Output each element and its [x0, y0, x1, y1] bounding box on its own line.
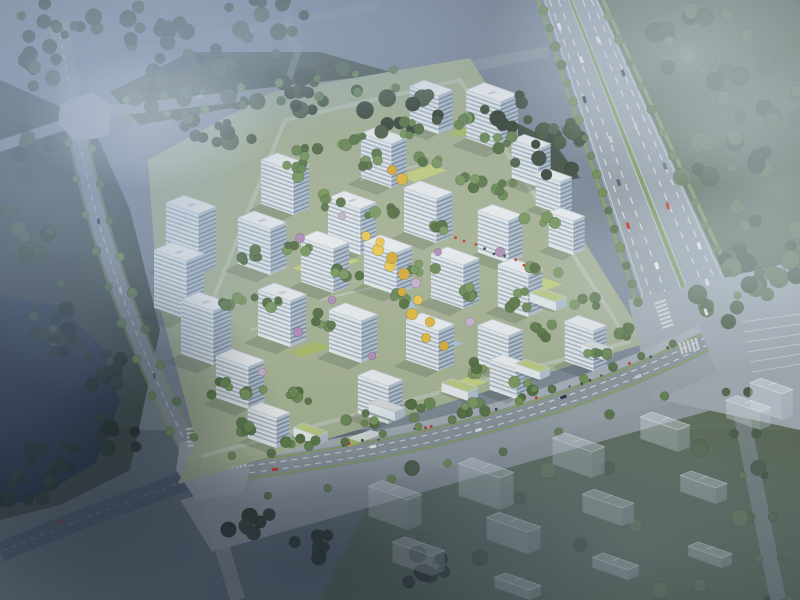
atmosphere-layer: [0, 0, 800, 600]
color-grade-overlay: [0, 0, 800, 600]
scene-svg: [0, 0, 800, 600]
aerial-render: [0, 0, 800, 600]
